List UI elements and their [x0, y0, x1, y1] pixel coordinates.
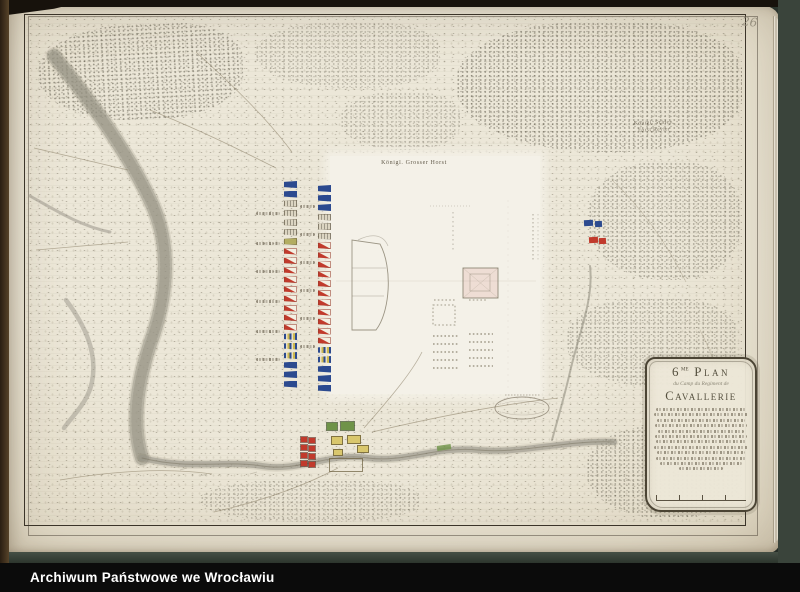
- forest-area: [200, 480, 420, 522]
- plan-word: Plan: [694, 364, 730, 379]
- cartouche-subtitle: du Camp du Regiment de: [654, 381, 748, 387]
- village-building-red: [309, 438, 315, 443]
- troop-block-red: [284, 276, 297, 283]
- troop-block-gray: [318, 223, 331, 230]
- handwritten-line: [657, 451, 744, 454]
- troop-block-blue: [318, 185, 331, 192]
- photo-edge-right: [778, 0, 800, 563]
- handwritten-line: [657, 419, 745, 422]
- handwritten-line: [256, 270, 280, 273]
- village-courtyard: [329, 458, 363, 472]
- cartouche-regiment: Cavallerie: [654, 389, 748, 404]
- village-building-red: [309, 454, 315, 459]
- troop-block-red: [284, 286, 297, 293]
- troop-block-gray: [284, 200, 297, 207]
- troop-block-blue: [318, 204, 331, 211]
- troop-mark-blue: [584, 220, 593, 226]
- plan-number-suffix: me: [681, 365, 689, 373]
- photo-edge-top: [0, 0, 800, 7]
- troop-column-left: [284, 181, 297, 388]
- village-building-red: [301, 445, 307, 450]
- handwritten-line: [300, 317, 315, 320]
- cartouche-handwritten-text: [654, 408, 748, 470]
- handwritten-line: [658, 430, 744, 433]
- troop-block-red: [318, 299, 331, 306]
- village-building-red: [309, 446, 315, 451]
- forest-area: [255, 22, 440, 88]
- forest-label-center: Königl. Grosser Horst: [348, 160, 480, 168]
- troop-block-red: [318, 271, 331, 278]
- village-building-yellow: [331, 436, 343, 445]
- handwritten-line: [256, 330, 280, 333]
- troop-block-red: [284, 257, 297, 264]
- handwritten-line: [300, 261, 315, 264]
- troop-block-red: [318, 328, 331, 335]
- troop-mark-red: [589, 237, 598, 243]
- troop-block-blue: [318, 385, 331, 392]
- forest-area: [340, 92, 460, 150]
- village-building-red: [309, 462, 315, 467]
- handwritten-line: [300, 233, 315, 236]
- troop-block-blue: [318, 375, 331, 382]
- troop-block-blue: [284, 371, 297, 378]
- archive-caption-bar: Archiwum Państwowe we Wrocławiu: [0, 563, 800, 592]
- handwritten-line: [655, 435, 746, 438]
- village-field-green: [327, 423, 337, 430]
- troop-block-red: [318, 261, 331, 268]
- archive-caption-text: Archiwum Państwowe we Wrocławiu: [30, 563, 275, 592]
- handwritten-line: [660, 462, 743, 465]
- handwritten-line: [256, 358, 280, 361]
- troop-block-stripe: [284, 352, 297, 359]
- troop-block-red: [284, 295, 297, 302]
- village-building-yellow: [347, 435, 361, 444]
- handwritten-line: [300, 345, 315, 348]
- troop-block-gray: [318, 214, 331, 221]
- handwritten-line: [256, 212, 280, 215]
- handwritten-line: [679, 467, 722, 470]
- village-building-yellow: [357, 445, 369, 453]
- handwritten-line: [300, 289, 315, 292]
- troop-block-red: [318, 309, 331, 316]
- page-number: 26: [741, 14, 758, 30]
- troop-block-red: [318, 252, 331, 259]
- photo-canvas: Königl. Grosser Horst Königl. Schles. Fo…: [0, 0, 800, 592]
- troop-block-stripe: [284, 343, 297, 350]
- village-building-red: [301, 437, 307, 442]
- plan-number: 6: [672, 364, 681, 379]
- troop-block-gray: [284, 210, 297, 217]
- handwritten-line: [656, 440, 745, 443]
- handwritten-line: [655, 424, 747, 427]
- troop-mark-red: [599, 238, 606, 244]
- village-building-red: [301, 461, 307, 466]
- handwritten-line: [300, 205, 315, 208]
- troop-block-red: [318, 242, 331, 249]
- troop-block-blue: [284, 191, 297, 198]
- handwritten-line: [656, 408, 746, 411]
- troop-column-right: [318, 185, 331, 392]
- troop-block-red: [318, 337, 331, 344]
- troop-block-gray: [284, 229, 297, 236]
- village-building-red: [301, 453, 307, 458]
- troop-block-red: [284, 248, 297, 255]
- handwritten-line: [654, 413, 747, 416]
- troop-block-olive: [284, 238, 297, 245]
- troop-block-red: [284, 267, 297, 274]
- cartouche-title-line: 6me Plan: [654, 364, 748, 380]
- troop-block-blue: [284, 381, 297, 388]
- handwritten-line: [656, 457, 746, 460]
- scale-bar-line: [656, 500, 746, 501]
- troop-mark-blue: [595, 221, 602, 227]
- troop-block-red: [284, 305, 297, 312]
- troop-block-blue: [284, 181, 297, 188]
- title-cartouche: 6me Plan du Camp du Regiment de Cavaller…: [645, 357, 757, 512]
- troop-block-red: [318, 318, 331, 325]
- troop-block-blue: [318, 195, 331, 202]
- troop-block-gray: [284, 219, 297, 226]
- handwritten-line: [654, 446, 747, 449]
- troop-block-red: [284, 324, 297, 331]
- village-field-green: [341, 422, 354, 430]
- camp-plan-inset: [330, 156, 540, 394]
- troop-block-blue: [284, 362, 297, 369]
- village-cluster: [295, 420, 455, 480]
- troop-block-stripe: [284, 333, 297, 340]
- forest-area: [588, 162, 740, 280]
- scale-bar: [656, 492, 746, 503]
- village-building-yellow: [333, 449, 343, 456]
- troop-block-stripe: [318, 356, 331, 363]
- troop-block-gray: [318, 233, 331, 240]
- handwritten-line: [256, 242, 280, 245]
- book-spine-edge: [0, 0, 9, 563]
- handwritten-line: [256, 300, 280, 303]
- troop-block-blue: [318, 366, 331, 373]
- troop-block-stripe: [318, 347, 331, 354]
- troop-block-red: [318, 290, 331, 297]
- troop-block-red: [318, 280, 331, 287]
- troop-block-red: [284, 314, 297, 321]
